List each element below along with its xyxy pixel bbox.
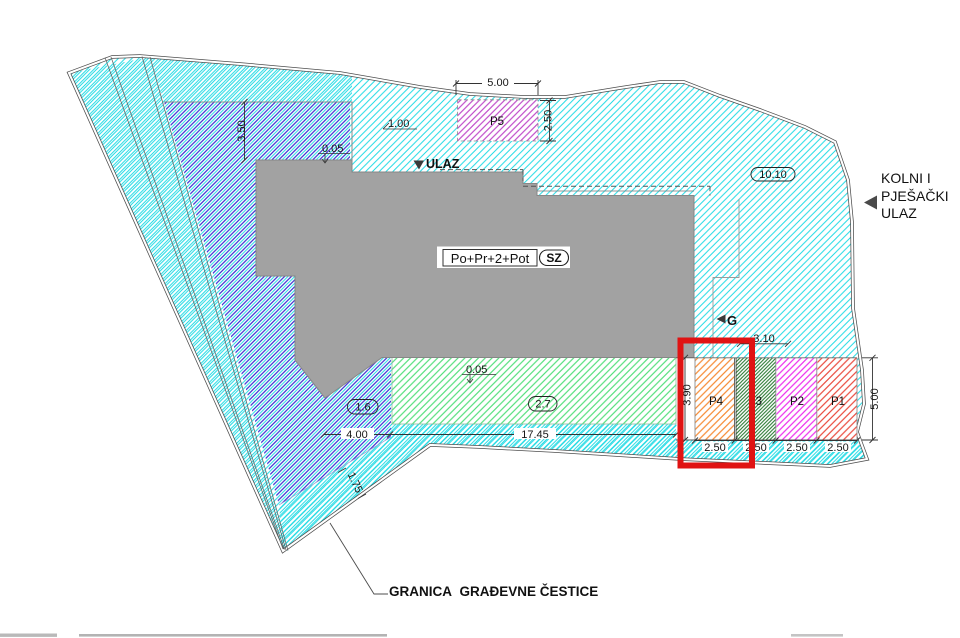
svg-text:ULAZ: ULAZ <box>426 157 460 171</box>
svg-text:3.10: 3.10 <box>753 333 774 345</box>
svg-text:17.45: 17.45 <box>521 429 549 441</box>
svg-text:2.50: 2.50 <box>745 442 766 454</box>
svg-text:5.00: 5.00 <box>487 77 508 89</box>
svg-text:ULAZ: ULAZ <box>881 205 917 221</box>
svg-text:PJEŠAČKI: PJEŠAČKI <box>881 188 949 204</box>
svg-text:Po+Pr+2+Pot: Po+Pr+2+Pot <box>451 251 530 266</box>
svg-text:10.10: 10.10 <box>759 169 787 181</box>
svg-text:2.50: 2.50 <box>704 442 725 454</box>
svg-text:P1: P1 <box>831 396 845 408</box>
svg-text:SZ: SZ <box>546 251 561 265</box>
svg-text:2.50: 2.50 <box>543 110 555 131</box>
svg-text:KOLNI I: KOLNI I <box>881 170 931 186</box>
svg-text:2.50: 2.50 <box>827 442 848 454</box>
svg-text:1.00: 1.00 <box>388 118 409 130</box>
svg-text:G: G <box>727 313 737 328</box>
svg-text:1.6: 1.6 <box>355 402 370 414</box>
svg-text:P2: P2 <box>790 396 804 408</box>
svg-text:5.00: 5.00 <box>869 388 881 409</box>
svg-text:P5: P5 <box>490 116 504 128</box>
svg-text:2.50: 2.50 <box>786 442 807 454</box>
svg-text:4.00: 4.00 <box>346 429 367 441</box>
svg-text:3.50: 3.50 <box>236 120 248 141</box>
svg-text:2.7: 2.7 <box>535 399 550 411</box>
svg-text:GRANICA GRAĐEVNE ČESTICE: GRANICA GRAĐEVNE ČESTICE <box>389 584 598 599</box>
svg-text:P4: P4 <box>709 396 724 408</box>
